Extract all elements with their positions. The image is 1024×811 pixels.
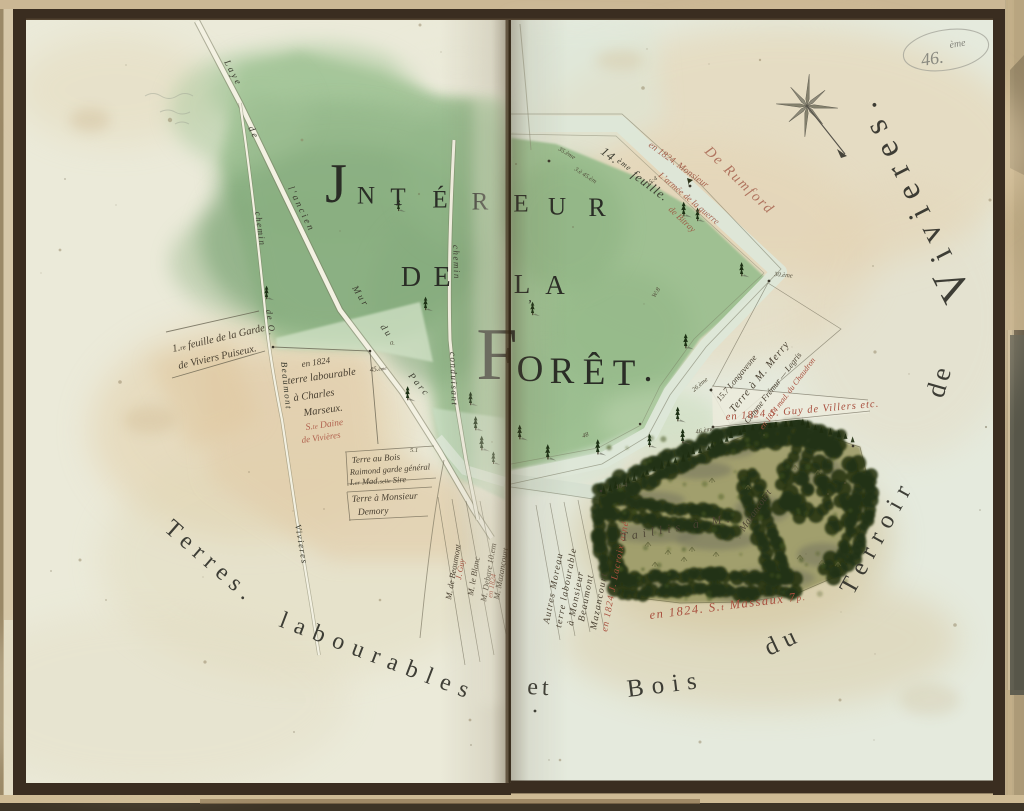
svg-text:R: R <box>588 193 606 222</box>
svg-text:5.1: 5.1 <box>410 447 418 454</box>
svg-text:T: T <box>613 353 636 394</box>
svg-text:D: D <box>401 262 421 293</box>
svg-text:46.: 46. <box>919 47 944 70</box>
svg-text:Demory: Demory <box>357 506 390 518</box>
svg-text:N: N <box>357 183 375 210</box>
svg-text:T: T <box>390 184 405 211</box>
svg-text:0.: 0. <box>390 340 395 347</box>
svg-text:Ê: Ê <box>583 351 606 393</box>
svg-text:.: . <box>643 349 652 390</box>
svg-text:J: J <box>325 153 347 215</box>
